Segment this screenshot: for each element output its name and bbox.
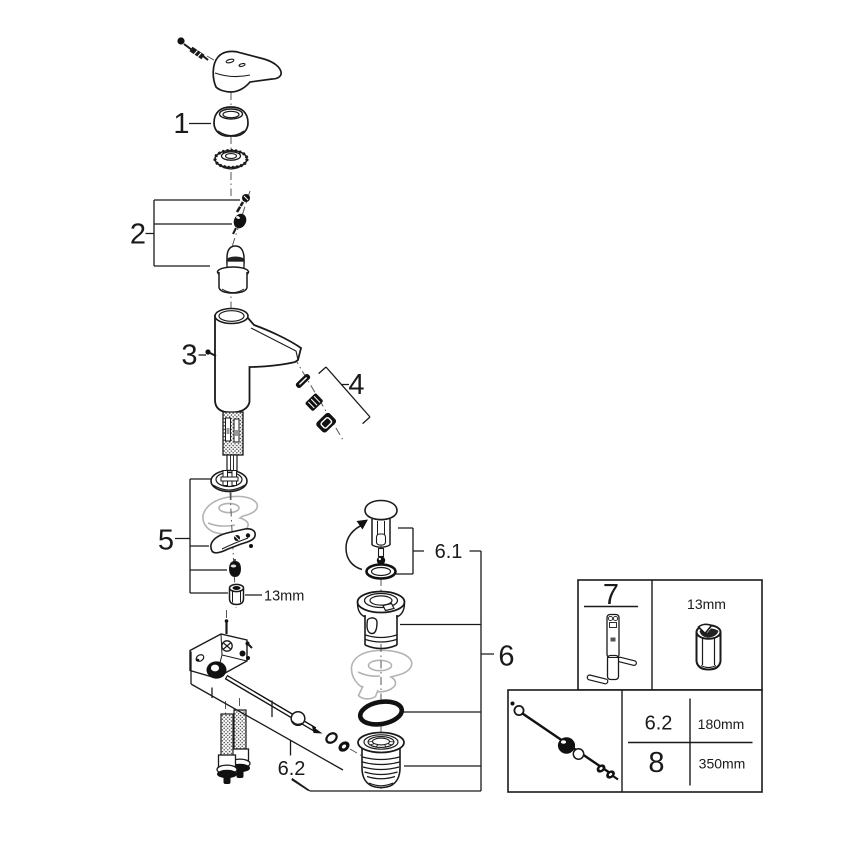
threaded-shank-drawing [223,412,243,472]
drain-plunger-drawing [365,501,397,565]
supply-hoses-drawing [217,710,250,784]
rod-table-length-2: 350mm [699,756,746,772]
cartridge-drawing [218,246,249,293]
callout-6-2-label: 6.2 [278,758,306,780]
callout-4-label: 4 [348,369,364,401]
rod-seal-washer-drawing [207,661,227,678]
aerator-insert-drawing [305,393,324,412]
cartridge-screw-drawing [237,194,250,212]
callout-6-label: 6 [498,641,514,673]
exploded-parts-diagram-canvas: 1 2 3 4 5 6 6.1 6.2 13mm 7 13mm 6.2 180m… [0,0,868,868]
drain-lower-housing-drawing [358,733,404,788]
faucet-body-drawing [205,309,301,413]
drain-large-o-ring-drawing [358,699,403,728]
drain-upper-body-drawing [358,592,405,649]
tool-box-ref-label: 7 [603,579,619,611]
socket-size-note: 13mm [264,589,304,605]
faucet-exploded-diagram: 1 2 3 4 5 6 6.1 6.2 13mm 7 13mm 6.2 180m… [0,0,868,868]
bearing-ring-nut-drawing [215,151,247,170]
rod-table-length-1: 180mm [698,716,745,732]
handle-lever-drawing [213,51,281,92]
socket-nut-icon [697,624,721,669]
rod-o-ring-drawing [325,731,339,745]
callout-lines [146,124,495,792]
rod-table-ref-1: 6.2 [645,713,673,735]
handle-screw-drawing [177,37,208,60]
callout-3-label: 3 [181,340,197,372]
escutcheon-cap-drawing [214,107,248,136]
rod-length-box [508,690,762,792]
tool-box-socket-size: 13mm [687,596,726,612]
ghost-sink-lower [351,650,411,699]
rotation-arrow [346,520,368,570]
cone-nut-drawing [230,559,241,577]
rod-small-washer-drawing [336,739,351,754]
aerator-housing-drawing [315,412,337,434]
ball-joint-drawing [231,212,248,234]
rod-table-ref-2: 8 [648,747,664,779]
shank-nut-13mm-drawing [230,584,244,604]
plunger-o-ring-drawing [367,565,396,579]
guide-pin-drawing [225,619,229,634]
callout-1-label: 1 [173,108,189,140]
shank-flange-ring-drawing [211,471,247,492]
callout-6-1-label: 6.1 [435,541,463,563]
callout-5-label: 5 [158,525,174,557]
callout-2-label: 2 [130,219,146,251]
